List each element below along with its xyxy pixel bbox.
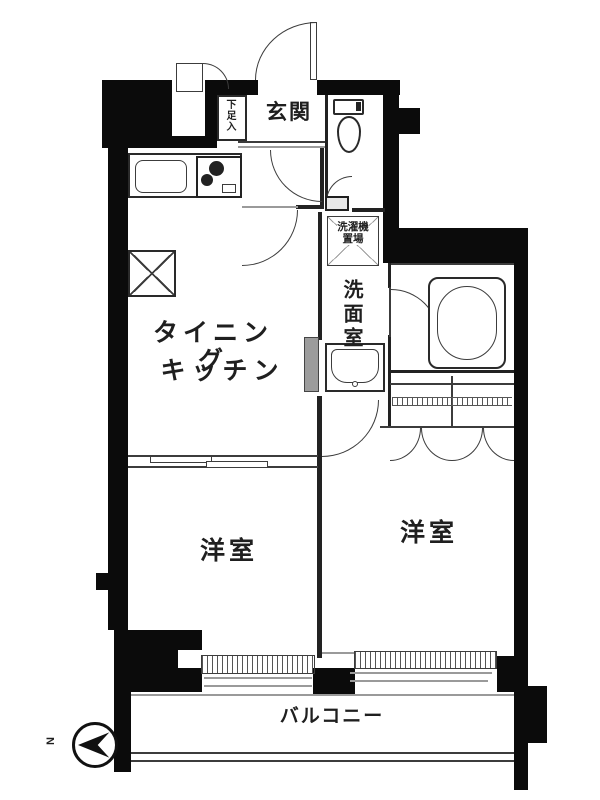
wall-bottom-left-b	[178, 630, 202, 650]
pipe-space-box	[325, 196, 349, 211]
compass	[72, 722, 118, 768]
entrance-door-arc	[255, 22, 317, 80]
bifold-door-arc	[421, 428, 452, 461]
wall-top-left-block	[102, 80, 172, 148]
shoe-cabinet-label: 下足入	[224, 99, 235, 132]
wall-nub-upper-right	[399, 108, 420, 134]
closet-shelf-line	[390, 383, 514, 385]
compass-arrow-icon	[78, 730, 112, 760]
window-right-bedroom	[354, 651, 497, 669]
refrigerator-space	[128, 250, 176, 297]
balcony-rail-line	[131, 760, 514, 762]
toilet-bowl	[337, 116, 361, 153]
genkan-step-line1	[238, 141, 325, 143]
stove-grill	[222, 184, 236, 193]
genkan-step-line2	[238, 146, 325, 148]
wall-bottom-middle	[313, 668, 355, 694]
balcony-rail-line	[131, 752, 514, 754]
pipe-shaft-shaded	[304, 337, 319, 392]
balcony-top-line	[131, 694, 514, 696]
wall-recess-bottom	[172, 136, 217, 148]
stove-burner	[201, 174, 213, 186]
wall-nub-left	[96, 573, 110, 590]
window-left-bedroom	[201, 655, 315, 674]
window-right-sill	[350, 680, 488, 682]
window-right-sill	[350, 672, 492, 674]
kitchen-sink	[135, 160, 187, 193]
hall-door-arc	[270, 150, 322, 202]
wall-right-upper	[383, 95, 399, 235]
dk-door-arc	[242, 210, 298, 266]
wall-bath-top	[390, 263, 514, 265]
sliding-door-panel	[206, 461, 268, 468]
service-door-arc	[203, 63, 229, 89]
wall-step-bar	[383, 228, 528, 263]
floor-plan-canvas: 下足入 洗濯機 置場 玄関 タイニング キッチン 洗面室 洋室 洋室 バルコニー…	[0, 0, 600, 800]
wall-bottom-right	[497, 656, 515, 692]
washer-space-label: 洗濯機 置場	[327, 222, 379, 245]
wall-entrance-right	[317, 80, 400, 95]
wall-bath-left-lower	[388, 335, 391, 374]
sliding-door-panel	[150, 456, 212, 463]
room-right-bottom-line	[322, 652, 356, 654]
compass-north-label: N	[45, 734, 57, 748]
wall-washroom-left	[318, 265, 322, 340]
washer-label-line2: 置場	[343, 233, 364, 245]
washbasin-drain	[352, 381, 358, 387]
stove-burner	[209, 161, 224, 176]
wall-washer-left	[318, 212, 322, 265]
wall-toilet-bottom	[352, 208, 385, 212]
washer-label-line1: 洗濯機	[337, 221, 369, 233]
entrance-label: 玄関	[256, 101, 322, 124]
wall-left-main	[108, 148, 128, 630]
wall-bottom-left-c	[178, 668, 202, 692]
dining-kitchen-label-line2: キッチン	[160, 358, 285, 386]
window-left-sill	[204, 677, 312, 679]
wall-bottom-left-a	[128, 630, 178, 692]
bifold-door-arc	[452, 428, 483, 461]
bedroom-left-label: 洋室	[193, 538, 265, 566]
bathtub-inner	[437, 286, 497, 360]
toilet-button	[356, 102, 361, 111]
bedroom-right-label: 洋室	[393, 520, 465, 548]
bifold-door-arc	[390, 428, 421, 461]
closet-hanger-bar	[392, 397, 512, 406]
bedroom-right-door-arc	[322, 400, 379, 457]
wall-bath-left-upper	[388, 263, 391, 288]
window-left-sill	[204, 685, 312, 687]
balcony-label: バルコニー	[262, 707, 402, 728]
bifold-door-arc	[483, 428, 514, 461]
threshold-hall	[242, 206, 298, 208]
wall-hall-bottom	[296, 205, 324, 209]
wall-nub-lower-right	[526, 686, 547, 743]
washroom-label: 洗面室	[340, 270, 362, 360]
service-door-leaf	[176, 63, 203, 92]
wall-bath-bottom	[390, 370, 514, 373]
